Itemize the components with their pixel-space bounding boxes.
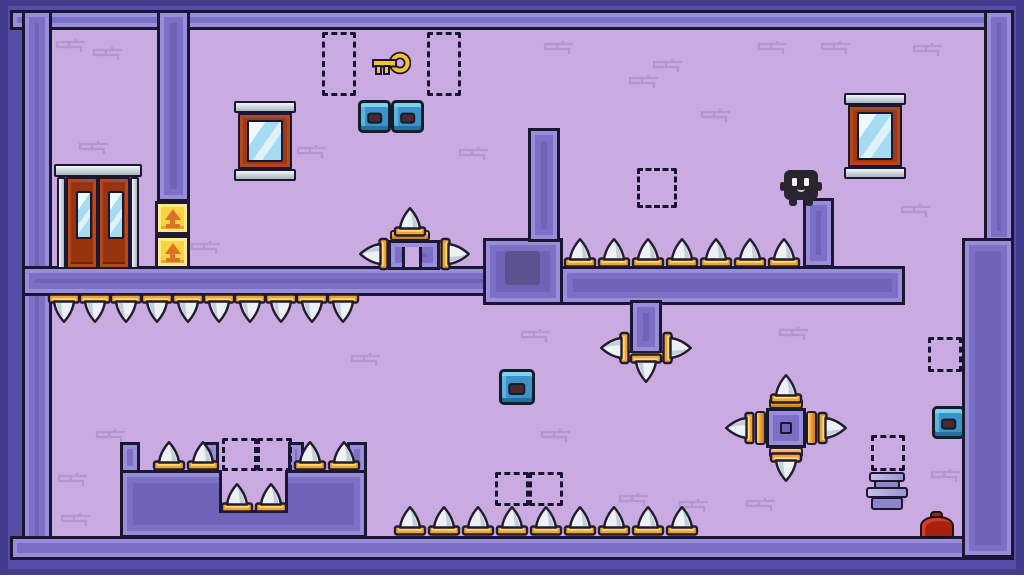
- mirror-glass: [857, 112, 893, 160]
- spikes-mid-floor: [767, 238, 801, 268]
- spikes-ceiling-left: [233, 293, 267, 323]
- door-lintel: [54, 164, 142, 177]
- mirror-left: [234, 101, 296, 181]
- spikes-bottom-floor: [461, 506, 495, 536]
- player-character[interactable]: [784, 170, 818, 206]
- player-eye-left: [792, 178, 797, 186]
- spikes-bottom-floor: [563, 506, 597, 536]
- brick-decor: [520, 328, 556, 344]
- brick-decor: [190, 240, 226, 256]
- marker-floor-left: [495, 472, 529, 506]
- spikes-ceiling-left: [295, 293, 329, 323]
- spikes-platform-a: [186, 441, 220, 471]
- door-window: [76, 191, 92, 239]
- brick-decor: [92, 46, 128, 62]
- brick-decor: [57, 472, 93, 488]
- spikes-mid-floor: [733, 238, 767, 268]
- gold-key[interactable]: [371, 50, 411, 80]
- game-viewport[interactable]: [0, 0, 1024, 575]
- player-mouth: [797, 186, 805, 192]
- blue-box-3[interactable]: [499, 369, 535, 405]
- brick-decor: [628, 74, 664, 90]
- mirror-cap-top: [844, 93, 906, 105]
- box-slot: [367, 113, 383, 124]
- red-slime[interactable]: [920, 511, 954, 538]
- spikes-pit: [220, 483, 254, 513]
- cross-spike-up: [769, 374, 803, 404]
- spikes-platform-b: [293, 441, 327, 471]
- hang-spike-down: [629, 353, 663, 383]
- door-post-left: [57, 177, 66, 269]
- spikes-ceiling-left: [202, 293, 236, 323]
- brick-decor: [296, 144, 332, 160]
- spikes-ceiling-left: [326, 293, 360, 323]
- player-arm-right: [817, 182, 822, 191]
- platform-cap-left: [120, 442, 140, 473]
- brick-decor: [745, 497, 781, 513]
- frame-edge: [0, 569, 1024, 575]
- spikes-mid-floor: [699, 238, 733, 268]
- marker-platform-left: [222, 438, 257, 471]
- marker-platform-right: [257, 438, 292, 471]
- arrow-crate-bottom[interactable]: [155, 235, 190, 269]
- brick-decor: [543, 40, 579, 56]
- spikes-ceiling-left: [140, 293, 174, 323]
- brick-decor: [912, 42, 948, 58]
- frame-edge: [0, 0, 8, 575]
- cross-spike-left: [725, 411, 755, 445]
- spikes-pit: [254, 483, 288, 513]
- player-arm-left: [780, 182, 785, 191]
- divider-right: [560, 266, 905, 305]
- cross-spike-down: [769, 452, 803, 482]
- cross-spike-right: [817, 411, 847, 445]
- up-arrow-icon: [165, 209, 181, 228]
- spikes-bottom-floor: [665, 506, 699, 536]
- cross-mount-left: [755, 411, 766, 445]
- double-door[interactable]: [54, 164, 142, 269]
- mirror-cap-bottom: [234, 169, 296, 181]
- player-leg-right: [805, 200, 813, 206]
- frame-edge: [0, 0, 1024, 6]
- pillar-top-left: [157, 10, 190, 202]
- finger-pillar: [528, 128, 560, 242]
- spikes-ceiling-left: [171, 293, 205, 323]
- marker-canister: [871, 435, 905, 471]
- spikes-bottom-floor: [529, 506, 563, 536]
- frame-edge: [1016, 0, 1024, 575]
- brick-decor: [458, 146, 494, 162]
- pedestal-spike-left: [359, 237, 389, 271]
- spikes-bottom-floor: [427, 506, 461, 536]
- slime-body: [920, 516, 954, 538]
- spikes-bottom-floor: [597, 506, 631, 536]
- brick-decor: [540, 428, 576, 444]
- spikes-platform-a: [152, 441, 186, 471]
- marker-key-right: [427, 32, 461, 96]
- wall-bottom: [10, 536, 1014, 560]
- character-pillar: [803, 198, 834, 268]
- mirror-cap-bottom: [844, 167, 906, 179]
- hang-spike-left: [600, 331, 630, 365]
- spikes-mid-floor: [665, 238, 699, 268]
- box-slot: [941, 419, 957, 430]
- brick-decor: [778, 326, 814, 342]
- blue-box-4[interactable]: [932, 406, 965, 439]
- spikes-bottom-floor: [631, 506, 665, 536]
- spikes-ceiling-left: [264, 293, 298, 323]
- spikes-mid-floor: [597, 238, 631, 268]
- spikes-platform-b: [327, 441, 361, 471]
- brick-decor: [350, 352, 386, 368]
- player-eye-right: [804, 178, 809, 186]
- spikes-bottom-floor: [495, 506, 529, 536]
- brick-decor: [900, 203, 936, 219]
- spike-cross-center: [780, 422, 792, 434]
- blue-box-2[interactable]: [391, 100, 424, 133]
- marker-right-shaft: [928, 337, 962, 372]
- canister-base: [871, 497, 903, 510]
- hang-spike-right: [662, 331, 692, 365]
- pedestal-spike-up: [393, 207, 427, 237]
- dark-doorway: [505, 251, 540, 285]
- box-slot: [400, 113, 416, 124]
- brick-decor: [60, 512, 96, 528]
- cross-mount-right: [806, 411, 817, 445]
- spikes-ceiling-left: [47, 293, 81, 323]
- arrow-crate-top[interactable]: [155, 201, 190, 235]
- mirror-right: [844, 93, 906, 179]
- spikes-mid-floor: [563, 238, 597, 268]
- brick-decor: [652, 58, 688, 74]
- brick-decor: [930, 468, 966, 484]
- door-window: [108, 191, 124, 239]
- mirror-cap-top: [234, 101, 296, 113]
- up-arrow-icon: [165, 243, 181, 262]
- spikes-mid-floor: [631, 238, 665, 268]
- door-panel-left: [66, 177, 98, 269]
- player-leg-left: [789, 200, 797, 206]
- hanging-pillar: [630, 300, 662, 354]
- brick-decor: [78, 140, 114, 156]
- player-head-body: [784, 170, 818, 200]
- door-post-right: [130, 177, 139, 269]
- marker-floor-right: [529, 472, 563, 506]
- brick-decor: [757, 40, 793, 56]
- spikes-ceiling-left: [109, 293, 143, 323]
- brick-decor: [55, 38, 91, 54]
- spikes-bottom-floor: [393, 506, 427, 536]
- blue-box-1[interactable]: [358, 100, 391, 133]
- marker-mid-air: [637, 168, 677, 208]
- pedestal-notch: [402, 247, 422, 270]
- door-panel-right: [98, 177, 130, 269]
- marker-key-left: [322, 32, 356, 96]
- brick-decor: [820, 40, 856, 56]
- wall-right-upper: [984, 10, 1014, 244]
- spikes-ceiling-left: [78, 293, 112, 323]
- wall-right-lower: [962, 238, 1014, 558]
- box-slot: [508, 383, 525, 395]
- brick-decor: [700, 108, 736, 124]
- divider-left: [22, 266, 497, 296]
- mirror-glass: [247, 120, 283, 162]
- pedestal-spike-right: [440, 237, 470, 271]
- canister[interactable]: [866, 472, 908, 510]
